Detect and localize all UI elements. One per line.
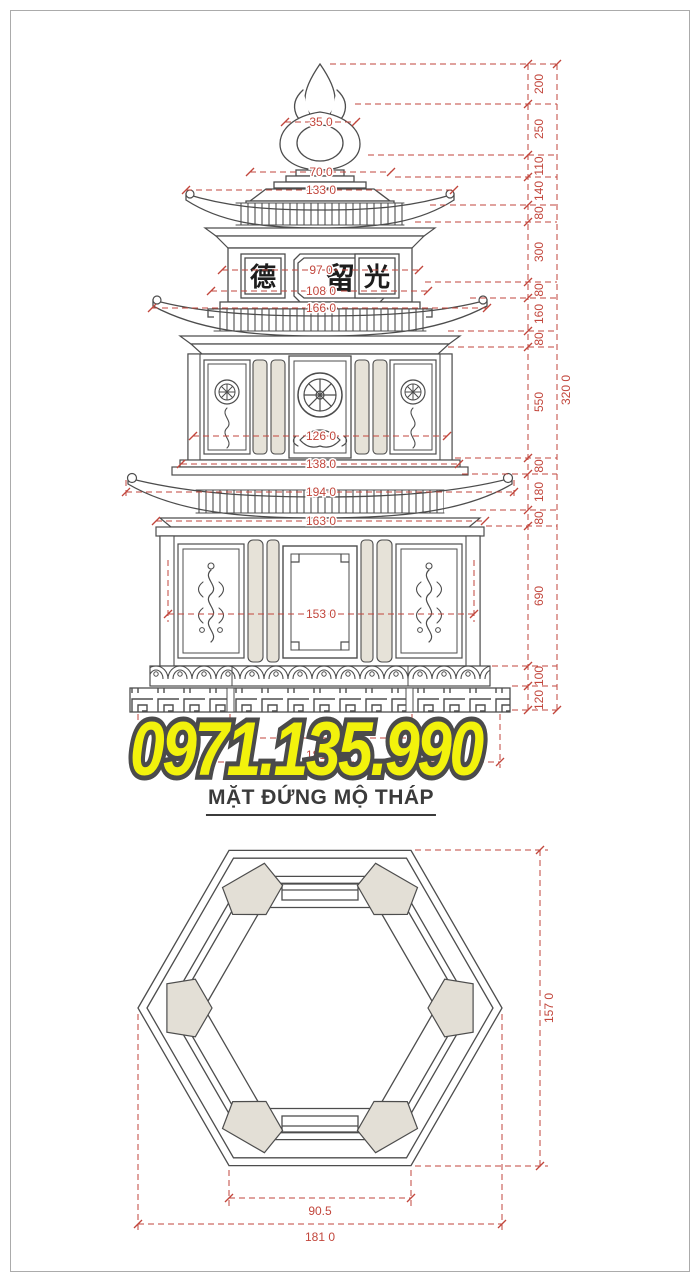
dim-label: 70 0 — [309, 165, 333, 179]
tier1-body — [160, 536, 480, 666]
dim-label: 194 0 — [306, 485, 336, 499]
dim-label: 133 0 — [306, 183, 336, 197]
phone-number: 0971.135.990 0971.135.990 — [130, 706, 515, 798]
dim-label: 138 0 — [306, 457, 336, 471]
dim-label: 80 — [532, 511, 546, 525]
dim-label: 80 — [532, 283, 546, 297]
dim-label: 163 0 — [306, 514, 336, 528]
column — [267, 540, 279, 662]
column — [361, 540, 373, 662]
dim-label-plan-inner: 90.5 — [308, 1204, 332, 1218]
dim-label: 110 — [532, 156, 546, 175]
column — [271, 360, 285, 454]
dim-label: 35 0 — [309, 115, 333, 129]
dim-label: 300 — [532, 242, 546, 262]
character-panel-right: 光 — [363, 262, 390, 292]
dim-label: 690 — [532, 586, 546, 606]
dim-label-total-height: 320 0 — [559, 375, 573, 405]
drawing-title: MẶT ĐỨNG MỘ THÁP — [206, 786, 436, 816]
column — [355, 360, 369, 454]
plan-drawing: 90.5 181 0 157 0 — [134, 846, 556, 1244]
dim-label: 153 0 — [306, 607, 336, 621]
dim-label: 100 — [532, 666, 546, 686]
dim-label: 80 — [532, 206, 546, 220]
dim-label: 200 — [532, 74, 546, 94]
dim-label: 120 — [532, 690, 546, 710]
dim-label: 140 — [532, 181, 546, 201]
phone-number-text: 0971.135.990 — [130, 706, 482, 793]
dim-label: 108 0 — [306, 284, 336, 298]
column — [377, 540, 392, 662]
cad-drawing: 德 留 光 — [0, 0, 699, 1280]
dim-label: 160 — [532, 304, 546, 324]
dim-label-plan-width: 181 0 — [305, 1230, 335, 1244]
drawing-sheet: 德 留 光 — [0, 0, 699, 1280]
dim-label: 80 — [532, 459, 546, 473]
dim-label: 250 — [532, 119, 546, 139]
dim-label: 180 — [532, 482, 546, 502]
dim-label: 166 0 — [306, 301, 336, 315]
dim-label: 550 — [532, 392, 546, 412]
column — [373, 360, 387, 454]
dim-label: 97 0 — [309, 263, 333, 277]
dim-label: 80 — [532, 332, 546, 346]
dimension-labels-right-chain: 200 250 110 140 80 300 80 160 80 550 80 … — [532, 74, 573, 710]
dim-label-plan-height: 157 0 — [542, 993, 556, 1023]
column — [248, 540, 263, 662]
column — [253, 360, 267, 454]
character-panel-left: 德 — [250, 262, 276, 292]
dim-label: 126 0 — [306, 429, 336, 443]
